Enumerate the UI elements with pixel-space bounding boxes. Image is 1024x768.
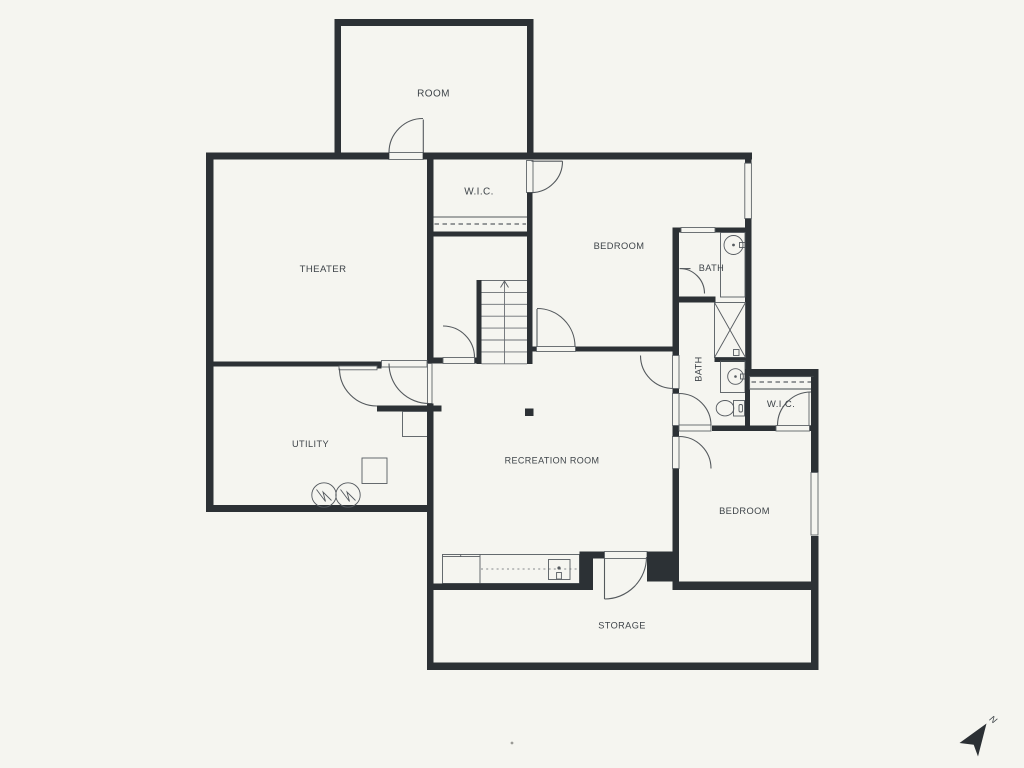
svg-text:BEDROOM: BEDROOM [719,506,770,516]
svg-text:STORAGE: STORAGE [598,620,646,630]
svg-text:ROOM: ROOM [417,89,450,100]
svg-text:BATH: BATH [694,356,704,381]
svg-text:BATH: BATH [699,263,724,273]
svg-text:W.I.C.: W.I.C. [767,399,795,410]
svg-text:W.I.C.: W.I.C. [464,187,494,198]
svg-text:RECREATION ROOM: RECREATION ROOM [505,455,600,465]
svg-text:UTILITY: UTILITY [292,439,329,449]
svg-text:THEATER: THEATER [300,264,347,275]
svg-text:BEDROOM: BEDROOM [594,241,645,251]
